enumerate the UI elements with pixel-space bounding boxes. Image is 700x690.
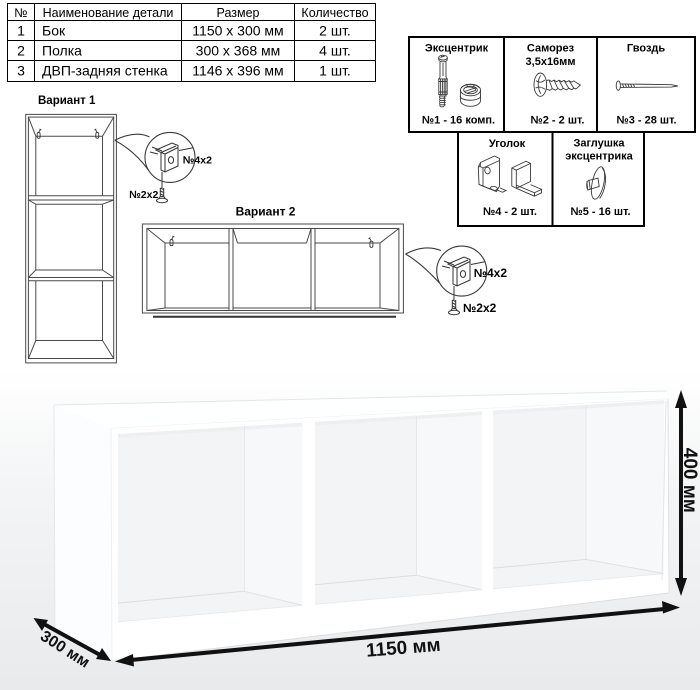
svg-text:№2х2: №2х2 — [463, 301, 497, 315]
svg-text:№2 - 2 шт.: №2 - 2 шт. — [531, 115, 585, 127]
svg-text:Эксцентрик: Эксцентрик — [425, 43, 489, 55]
svg-text:1: 1 — [17, 23, 25, 39]
svg-text:Гвоздь: Гвоздь — [627, 43, 666, 55]
svg-text:2: 2 — [17, 43, 25, 59]
svg-text:2 шт.: 2 шт. — [319, 23, 351, 39]
svg-text:Бок: Бок — [42, 23, 66, 39]
svg-text:№1 - 16 комп.: №1 - 16 комп. — [422, 115, 495, 127]
svg-text:Заглушка: Заглушка — [573, 138, 625, 150]
svg-text:Количество: Количество — [301, 6, 368, 20]
svg-text:Саморез: Саморез — [527, 43, 575, 55]
svg-text:4 шт.: 4 шт. — [319, 43, 351, 59]
svg-text:1146 x 396 мм: 1146 x 396 мм — [192, 63, 283, 79]
svg-text:400 мм: 400 мм — [679, 448, 700, 513]
svg-text:№4х2: №4х2 — [474, 266, 508, 280]
svg-text:эксцентрика: эксцентрика — [565, 151, 633, 163]
svg-text:3,5х16мм: 3,5х16мм — [526, 56, 576, 68]
svg-text:Вариант 1: Вариант 1 — [38, 95, 96, 107]
svg-text:№4х2: №4х2 — [183, 155, 212, 167]
svg-text:3: 3 — [17, 63, 25, 79]
svg-text:Размер: Размер — [217, 6, 260, 20]
svg-text:1150 x 300 мм: 1150 x 300 мм — [192, 23, 283, 39]
svg-text:300 x 368 мм: 300 x 368 мм — [196, 43, 281, 59]
svg-text:Вариант 2: Вариант 2 — [236, 205, 296, 219]
svg-text:Полка: Полка — [42, 43, 82, 59]
svg-text:Наименование детали: Наименование детали — [43, 6, 174, 20]
svg-text:№4 - 2 шт.: №4 - 2 шт. — [483, 206, 537, 218]
svg-text:1 шт.: 1 шт. — [319, 63, 351, 79]
svg-text:№3 - 28 шт.: №3 - 28 шт. — [616, 115, 676, 127]
svg-text:№: № — [14, 6, 27, 20]
svg-text:№2х2: №2х2 — [129, 189, 158, 201]
svg-text:ДВП-задняя стенка: ДВП-задняя стенка — [42, 63, 168, 79]
svg-text:Уголок: Уголок — [489, 138, 526, 150]
svg-text:№5 - 16 шт.: №5 - 16 шт. — [570, 206, 630, 218]
